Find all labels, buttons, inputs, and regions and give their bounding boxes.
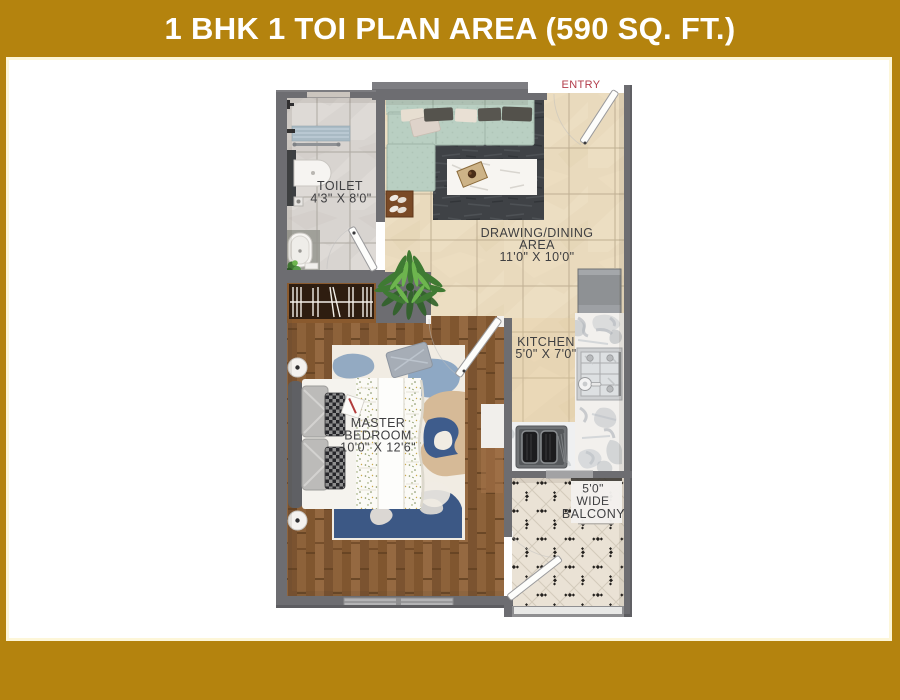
svg-text:11'0" X 10'0": 11'0" X 10'0": [500, 250, 575, 264]
svg-text:10'0" X 12'6": 10'0" X 12'6": [340, 441, 416, 455]
svg-text:1 BHK 1 TOI PLAN AREA (590 SQ.: 1 BHK 1 TOI PLAN AREA (590 SQ. FT.): [165, 11, 736, 46]
svg-text:4'3" X 8'0": 4'3" X 8'0": [310, 192, 371, 206]
svg-text:WIDE: WIDE: [577, 494, 610, 508]
svg-text:ENTRY: ENTRY: [561, 79, 600, 91]
svg-text:BALCONY: BALCONY: [562, 507, 625, 521]
svg-text:5'0" X 7'0": 5'0" X 7'0": [515, 347, 576, 361]
